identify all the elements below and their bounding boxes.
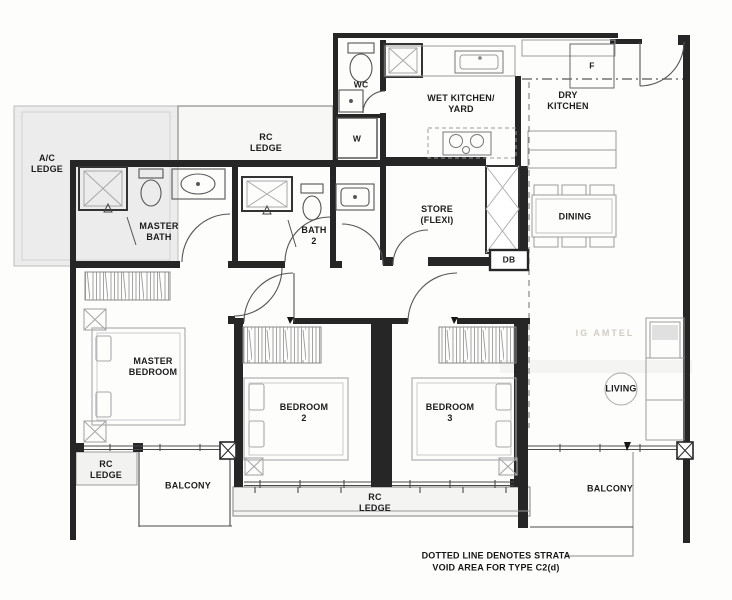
washer-label: W — [353, 134, 361, 145]
room-label-bedroom-2: BEDROOM 2 — [280, 402, 328, 425]
room-label-wet-kitchen: WET KITCHEN/ YARD — [427, 93, 494, 116]
room-label-bath-2: BATH 2 — [301, 225, 326, 248]
room-label-store: STORE (FLEXI) — [421, 204, 454, 227]
room-label-ac-ledge: A/C LEDGE — [31, 153, 63, 176]
watermark: IG AMTEL — [576, 328, 635, 338]
room-label-bedroom-3: BEDROOM 3 — [426, 402, 474, 425]
room-label-balcony-right: BALCONY — [587, 483, 633, 494]
room-label-living: LIVING — [605, 383, 636, 394]
wc-label: WC — [354, 80, 369, 91]
strata-void-note: DOTTED LINE DENOTES STRATA VOID AREA FOR… — [422, 550, 571, 573]
room-label-balcony-left: BALCONY — [165, 480, 211, 491]
floor-plan: A/C LEDGE RC LEDGE WC W WET KITCHEN/ YAR… — [0, 0, 732, 600]
room-label-dry-kitchen: DRY KITCHEN — [547, 90, 588, 113]
room-label-master-bedroom: MASTER BEDROOM — [129, 356, 177, 379]
fridge-label: F — [589, 61, 594, 72]
room-label-rc-ledge-center: RC LEDGE — [359, 492, 391, 515]
room-label-rc-ledge-top: RC LEDGE — [250, 132, 282, 155]
room-label-master-bath: MASTER BATH — [139, 221, 178, 244]
room-label-rc-ledge-left: RC LEDGE — [90, 459, 122, 482]
db-label: DB — [503, 255, 516, 266]
room-label-dining: DINING — [559, 211, 592, 222]
column-markers — [220, 442, 693, 459]
